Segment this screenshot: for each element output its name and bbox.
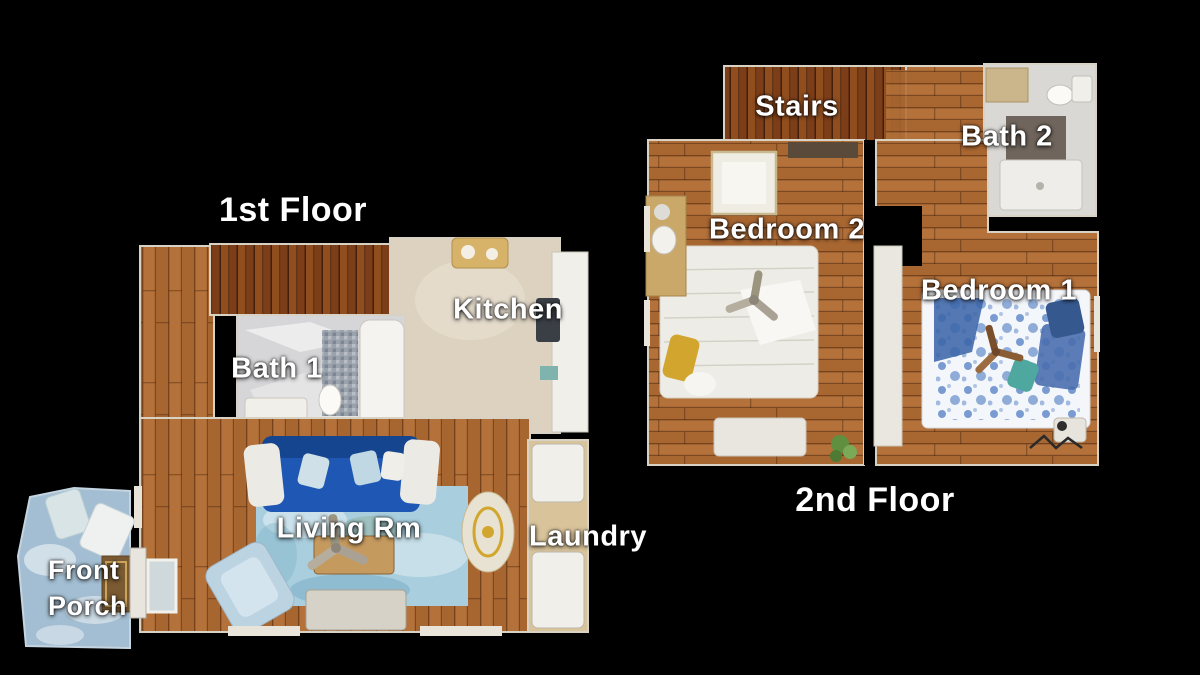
floorplan-scene: 1st Floor Kitchen Bath 1 Living Rm Laund…	[0, 0, 1200, 675]
front-porch-label-line1: Front	[48, 552, 127, 588]
front-door	[130, 548, 146, 618]
shower-drain	[1036, 182, 1044, 190]
toilet-tank	[1072, 76, 1092, 102]
first-floor-stairs	[210, 244, 391, 315]
front-porch-label-line2: Porch	[48, 588, 127, 624]
bench	[306, 590, 406, 630]
toilet	[319, 385, 341, 415]
window-sill	[1094, 296, 1100, 352]
kitchen-plate	[486, 248, 498, 260]
dryer	[532, 552, 584, 628]
window-sill	[228, 626, 300, 636]
window-sill	[644, 206, 650, 252]
hallway-floor	[140, 246, 214, 422]
bedroom2-desk	[788, 142, 858, 158]
bedroom2-bench	[714, 418, 806, 456]
throw-pillow	[380, 451, 406, 482]
kitchen-plate	[461, 245, 475, 259]
toilet	[1047, 85, 1073, 105]
sofa-arm-cover	[243, 442, 285, 507]
window-sill	[420, 626, 502, 636]
bathtub	[360, 320, 404, 428]
stairs-label: Stairs	[755, 93, 839, 122]
entry-rug	[148, 560, 176, 612]
vanity-sink	[652, 226, 676, 254]
round-rug-center	[482, 526, 494, 538]
first-floor-title: 1st Floor	[219, 193, 367, 227]
washer	[532, 444, 584, 502]
crib-mattress	[722, 162, 766, 204]
living-room-label: Living Rm	[277, 515, 422, 544]
kitchen-label: Kitchen	[453, 296, 563, 325]
bedroom1-closet	[874, 246, 902, 446]
second-floor-title: 2nd Floor	[795, 483, 954, 517]
window-sill	[644, 300, 650, 346]
floorplan-artwork	[0, 0, 1200, 675]
kitchen-counter-strip	[552, 252, 588, 432]
sofa-arm-cover	[399, 439, 440, 506]
bath1-label: Bath 1	[231, 355, 323, 384]
kitchen-island	[452, 238, 508, 268]
bath2-vanity	[986, 68, 1028, 102]
pet-bowl	[1057, 421, 1067, 431]
bedroom2-label: Bedroom 2	[709, 216, 865, 245]
front-porch-label: Front Porch	[48, 552, 127, 624]
window-sill	[134, 486, 142, 528]
bedroom1-label: Bedroom 1	[921, 277, 1077, 306]
kitchen-sink	[540, 366, 558, 380]
white-pillow	[684, 372, 716, 396]
vanity-mirror	[654, 204, 670, 220]
porch-cloud	[36, 625, 84, 645]
laundry-label: Laundry	[529, 523, 647, 552]
bath2-label: Bath 2	[961, 123, 1053, 152]
